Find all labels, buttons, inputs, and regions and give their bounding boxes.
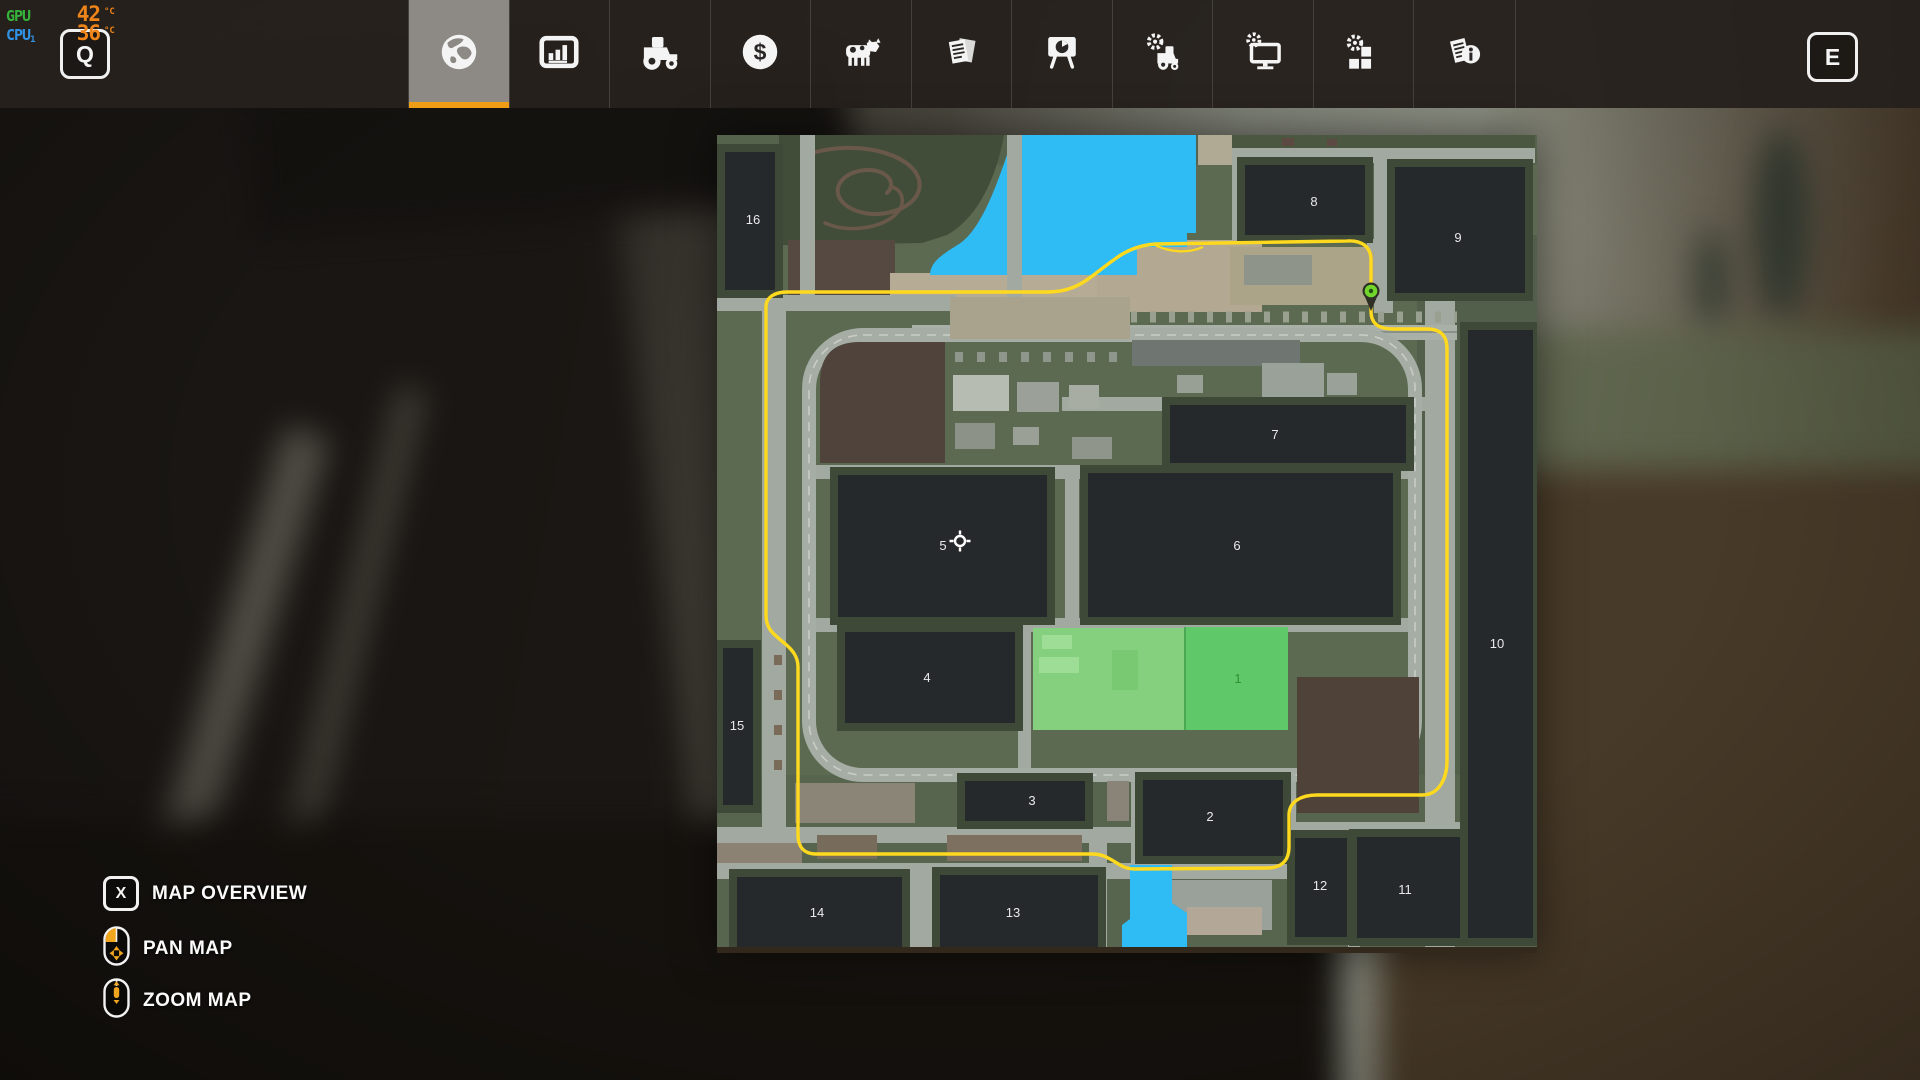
game-screen: $ bbox=[0, 0, 1920, 1080]
field-1-label: 1 bbox=[1234, 671, 1241, 686]
plowed-field bbox=[820, 342, 945, 463]
field-13-label: 13 bbox=[1006, 905, 1020, 920]
tab-contracts[interactable] bbox=[912, 0, 1013, 108]
field-3[interactable] bbox=[965, 781, 1085, 821]
map-canvas[interactable]: 2345678910111213141516 1 bbox=[717, 135, 1537, 953]
legend-map-overview-label: MAP OVERVIEW bbox=[152, 883, 307, 905]
easel-chart-icon bbox=[1039, 29, 1085, 80]
gpu-label: GPU bbox=[6, 7, 66, 25]
field-2-label: 2 bbox=[1206, 809, 1213, 824]
cow-icon bbox=[838, 29, 884, 80]
mouse-wheel-icon bbox=[103, 978, 130, 1023]
field-4-label: 4 bbox=[923, 670, 930, 685]
svg-text:$: $ bbox=[754, 39, 767, 65]
field-12-label: 12 bbox=[1313, 878, 1327, 893]
field-3-label: 3 bbox=[1028, 793, 1035, 808]
legend-zoom-map-label: ZOOM MAP bbox=[143, 990, 252, 1012]
documents-icon bbox=[938, 29, 984, 80]
mouse-pan-icon bbox=[103, 926, 130, 971]
legend-pan-map: PAN MAP bbox=[103, 926, 233, 971]
tab-statistics[interactable] bbox=[510, 0, 611, 108]
gpu-temp-row: GPU 42 °C bbox=[6, 2, 115, 21]
cpu-temp-unit: °C bbox=[104, 26, 115, 36]
tab-mods[interactable] bbox=[1314, 0, 1415, 108]
field-9-label: 9 bbox=[1454, 230, 1461, 245]
legend-zoom-map: ZOOM MAP bbox=[103, 978, 252, 1023]
active-tab-underline bbox=[409, 102, 509, 108]
cpu-label: CPU1 bbox=[6, 26, 66, 44]
tab-animals[interactable] bbox=[811, 0, 912, 108]
tab-finances[interactable]: $ bbox=[711, 0, 812, 108]
tractor-gear-icon bbox=[1139, 29, 1185, 80]
hardware-monitor-overlay: GPU 42 °C CPU1 36 °C bbox=[6, 2, 115, 40]
tab-help[interactable] bbox=[1414, 0, 1515, 108]
globe-icon bbox=[436, 29, 482, 80]
field-8-label: 8 bbox=[1310, 194, 1317, 209]
plowed-field-2 bbox=[1297, 677, 1419, 813]
bar-chart-icon bbox=[536, 29, 582, 80]
toolbar-tabs: $ bbox=[408, 0, 1516, 108]
field-10-label: 10 bbox=[1490, 636, 1504, 651]
tractor-icon bbox=[637, 29, 683, 80]
legend-pan-map-label: PAN MAP bbox=[143, 938, 233, 960]
key-x-icon: X bbox=[103, 876, 139, 911]
tab-vehicles[interactable] bbox=[610, 0, 711, 108]
field-15-label: 15 bbox=[730, 718, 744, 733]
top-toolbar: $ bbox=[0, 0, 1920, 108]
info-document-icon bbox=[1441, 29, 1487, 80]
field-7[interactable] bbox=[1170, 405, 1406, 463]
toolbar-hotkey-e: E bbox=[1807, 32, 1858, 82]
tab-production[interactable] bbox=[1012, 0, 1113, 108]
field-7-label: 7 bbox=[1271, 427, 1278, 442]
field-16-label: 16 bbox=[746, 212, 760, 227]
tab-garage[interactable] bbox=[1113, 0, 1214, 108]
gpu-temp-unit: °C bbox=[104, 7, 115, 17]
field-11-label: 11 bbox=[1398, 882, 1412, 897]
cpu-temp-value: 36 bbox=[66, 21, 100, 45]
dollar-icon: $ bbox=[737, 29, 783, 80]
tab-map[interactable] bbox=[409, 0, 510, 108]
field-5-label: 5 bbox=[939, 538, 946, 553]
legend-map-overview: X MAP OVERVIEW bbox=[103, 876, 307, 911]
monitor-gear-icon bbox=[1240, 29, 1286, 80]
field-10[interactable] bbox=[1468, 330, 1533, 938]
field-14-label: 14 bbox=[810, 905, 824, 920]
field-6-label: 6 bbox=[1233, 538, 1240, 553]
blocks-gear-icon bbox=[1340, 29, 1386, 80]
field-8[interactable] bbox=[1245, 165, 1365, 235]
tab-general-settings[interactable] bbox=[1213, 0, 1314, 108]
